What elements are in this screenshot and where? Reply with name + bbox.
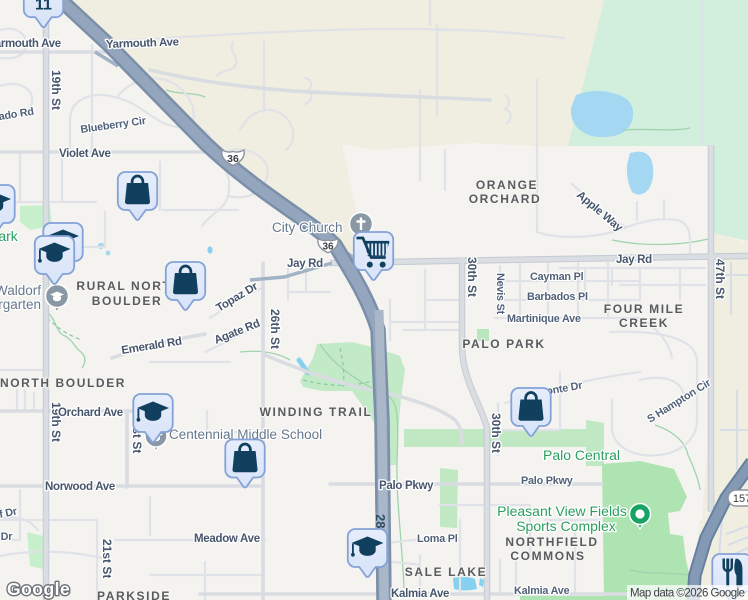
svg-text:Loma Pl: Loma Pl — [417, 533, 458, 545]
svg-text:COMMONS: COMMONS — [510, 549, 585, 563]
svg-text:Palo Central: Palo Central — [543, 447, 620, 463]
svg-text:Google: Google — [7, 579, 70, 599]
svg-text:NORTHFIELD: NORTHFIELD — [505, 535, 598, 549]
svg-text:157: 157 — [733, 493, 748, 505]
svg-text:Yarmouth Ave: Yarmouth Ave — [0, 38, 61, 50]
svg-text:ORANGE: ORANGE — [476, 178, 538, 192]
svg-text:Map data ©2026 Google: Map data ©2026 Google — [630, 588, 745, 600]
svg-text:30th St: 30th St — [465, 257, 479, 297]
svg-text:Kalmia Ave: Kalmia Ave — [514, 585, 570, 597]
svg-text:PARKSIDE: PARKSIDE — [97, 589, 171, 600]
svg-text:y Dr: y Dr — [0, 531, 13, 543]
svg-text:NORTH BOULDER: NORTH BOULDER — [0, 376, 126, 390]
svg-text:PALO PARK: PALO PARK — [462, 337, 545, 351]
svg-text:FOUR MILE: FOUR MILE — [604, 302, 684, 316]
svg-text:Waldorf: Waldorf — [0, 283, 41, 298]
svg-text:Cayman Pl: Cayman Pl — [530, 271, 584, 283]
svg-text:Jay Rd: Jay Rd — [616, 254, 652, 266]
svg-text:11: 11 — [35, 0, 52, 14]
svg-text:Jay Rd: Jay Rd — [287, 258, 323, 270]
svg-text:26th St: 26th St — [268, 309, 282, 349]
svg-text:Norwood Ave: Norwood Ave — [45, 481, 115, 493]
svg-text:36: 36 — [322, 242, 334, 253]
svg-text:City Church: City Church — [272, 220, 343, 235]
svg-text:rgarten: rgarten — [0, 297, 41, 312]
svg-text:ORCHARD: ORCHARD — [469, 192, 542, 206]
svg-text:Palo Pkwy: Palo Pkwy — [379, 480, 434, 492]
svg-text:Kalmia Ave: Kalmia Ave — [391, 588, 449, 600]
svg-text:Nevis St: Nevis St — [494, 273, 506, 315]
svg-text:Pleasant View Fields: Pleasant View Fields — [497, 503, 627, 519]
svg-text:Orchard Ave: Orchard Ave — [58, 407, 123, 419]
svg-text:WINDING TRAIL: WINDING TRAIL — [260, 405, 373, 419]
svg-text:30th St: 30th St — [489, 413, 503, 453]
svg-text:19th St: 19th St — [49, 70, 63, 110]
svg-text:Park: Park — [0, 228, 19, 244]
svg-text:Yarmouth Ave: Yarmouth Ave — [106, 36, 179, 51]
svg-text:Martinique Ave: Martinique Ave — [507, 313, 581, 325]
svg-text:CREEK: CREEK — [619, 316, 669, 330]
svg-text:BOULDER: BOULDER — [92, 294, 163, 308]
svg-text:SALE LAKE: SALE LAKE — [405, 565, 487, 579]
svg-text:Violet Ave: Violet Ave — [59, 148, 111, 160]
svg-text:Barbados Pl: Barbados Pl — [527, 291, 588, 303]
svg-text:36: 36 — [227, 153, 239, 165]
svg-text:Meadow Ave: Meadow Ave — [194, 533, 260, 545]
svg-text:Sports Complex: Sports Complex — [516, 518, 616, 534]
svg-text:47th St: 47th St — [713, 259, 727, 299]
svg-text:Palo Pkwy: Palo Pkwy — [521, 475, 573, 487]
svg-text:21st St: 21st St — [100, 539, 114, 578]
